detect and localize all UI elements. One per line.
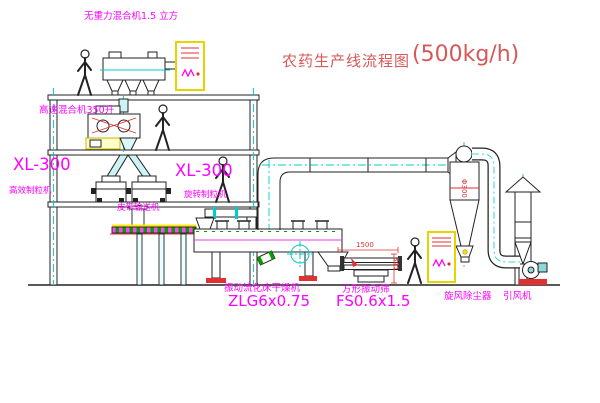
gravity-free-mixer [100,52,176,95]
granulators-xl300 [91,155,171,202]
label-fan: 引风机 [503,292,532,302]
control-cabinet-upper [176,42,204,90]
control-cabinet-lower [428,232,455,282]
label-granulator-right-model: XL-300 [175,163,233,180]
label-high-speed-mixer: 高速混合机350升 [39,106,114,116]
dim-sieve-height: 341 [392,257,399,270]
diagram-title: 农药生产线流程图 (500kg/h) [282,42,519,71]
label-dryer-model: ZLG6x0.75 [228,294,310,309]
label-gravity-free-mixer: 无重力混合机1.5 立方 [84,12,178,22]
belt-conveyor [110,206,198,285]
label-granulator-left-name: 高效制粒机 [9,187,52,196]
label-granulator-right-name: 旋转制粒机 [184,191,227,200]
label-cyclone: 旋风除尘器 [444,292,492,302]
label-granulator-left-model: XL-300 [13,157,71,174]
fluid-bed-dryer [194,218,348,283]
label-sieve-model: FS0.6x1.5 [336,294,410,309]
dryer-exhaust-duct [258,152,456,230]
label-belt-conveyor: 皮带输送机 [117,204,160,213]
title-capacity: (500kg/h) [412,42,519,67]
dim-sieve-length: 1500 [356,242,374,249]
title-text: 农药生产线流程图 [282,42,410,71]
dim-cyclone-pipe: Φ300 [460,179,467,198]
cad-drawing-page: 农药生产线流程图 (500kg/h) 无重力混合机1.5 立方 高速混合机350… [0,0,600,403]
